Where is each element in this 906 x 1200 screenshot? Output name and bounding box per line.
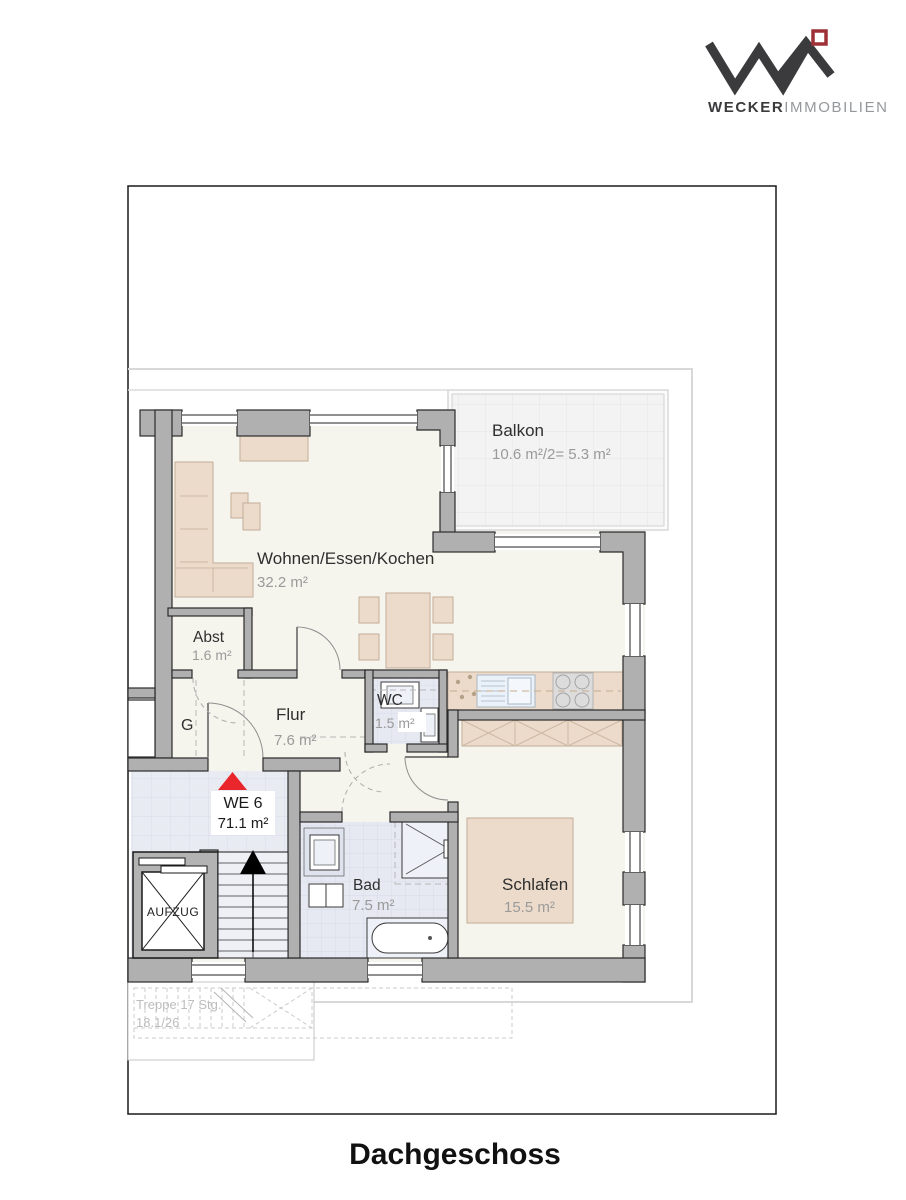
kitchen xyxy=(448,672,623,710)
elevator-label: AUFZUG xyxy=(147,905,199,919)
room-label-flur: Flur xyxy=(276,705,306,724)
room-area-wc: 1.5 m² xyxy=(375,715,415,731)
chair xyxy=(359,634,379,660)
room-area-balkon: 10.6 m²/2= 5.3 m² xyxy=(492,446,611,463)
brand-light-text: IMMOBILIEN xyxy=(784,99,888,116)
room-area-flur: 7.6 m² xyxy=(274,732,317,749)
floorplan-canvas: WECKERIMMOBILIEN Treppe 17 Stg. 18.1/26 … xyxy=(0,0,906,1200)
shaft-left xyxy=(128,700,155,757)
room-area-bad: 7.5 m² xyxy=(352,897,395,914)
room-label-abst: Abst xyxy=(193,629,225,646)
logo-red-square-icon xyxy=(813,31,826,44)
brand-logo: WECKERIMMOBILIEN xyxy=(708,31,889,116)
garderobe-label: G xyxy=(181,717,193,734)
brand-name: WECKERIMMOBILIEN xyxy=(708,99,889,116)
logo-mark-peak-icon xyxy=(777,43,831,80)
unit-label: WE 6 xyxy=(223,795,262,812)
floor-title: Dachgeschoss xyxy=(349,1138,561,1171)
room-area-schlafen: 15.5 m² xyxy=(504,899,555,916)
elevator: AUFZUG xyxy=(133,852,218,958)
stairs-note-line1: Treppe 17 Stg. xyxy=(136,997,222,1012)
room-label-wc: WC xyxy=(377,692,403,709)
room-label-bad: Bad xyxy=(353,877,381,894)
floorplan-page: WECKERIMMOBILIEN Treppe 17 Stg. 18.1/26 … xyxy=(0,0,906,1200)
toilet xyxy=(309,884,326,907)
room-label-balkon: Balkon xyxy=(492,421,544,440)
unit-area: 71.1 m² xyxy=(218,815,269,832)
room-area-abst: 1.6 m² xyxy=(192,647,232,663)
brand-bold-text: WECKER xyxy=(708,99,784,116)
dining-table xyxy=(386,593,430,668)
sideboard xyxy=(240,433,308,461)
staircase xyxy=(218,850,288,958)
room-label-wohnen: Wohnen/Essen/Kochen xyxy=(257,549,434,568)
chair xyxy=(359,597,379,623)
chair xyxy=(433,597,453,623)
room-label-schlafen: Schlafen xyxy=(502,875,568,894)
chair xyxy=(433,634,453,660)
room-area-wohnen: 32.2 m² xyxy=(257,574,308,591)
balcony: Balkon 10.6 m²/2= 5.3 m² xyxy=(448,390,668,530)
stairs-note-line2: 18.1/26 xyxy=(136,1015,179,1030)
side-table xyxy=(243,503,260,530)
